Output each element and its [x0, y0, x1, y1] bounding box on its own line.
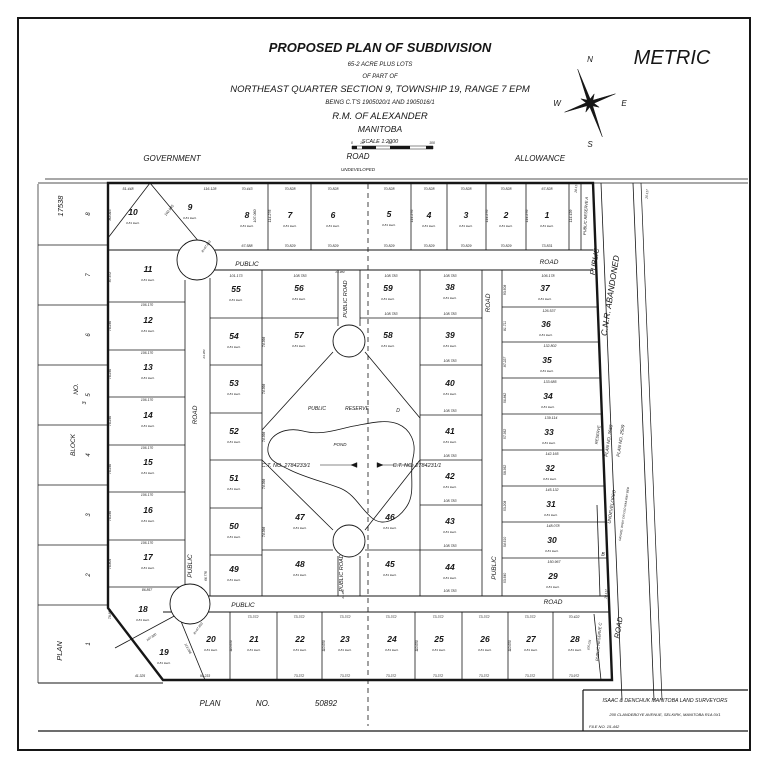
dimension-text: 106.170 [141, 541, 153, 545]
lot-area: 0.81 Hect. [385, 648, 399, 652]
road-label: ROAD [485, 293, 492, 312]
ct-arrowheads [351, 463, 383, 468]
lot-number: 23 [339, 634, 350, 644]
dimension-text: 110.050 [415, 640, 419, 652]
lot-area: 0.81 Hect. [538, 297, 552, 301]
lot-area: 0.81 Hect. [383, 526, 397, 530]
boundary-line [150, 183, 200, 243]
adjacent-lot-number: 1 [86, 642, 92, 645]
dimension-text: 113.098 [183, 643, 192, 655]
dimension: 20.117 [645, 189, 650, 200]
plan-province: MANITOBA [358, 124, 403, 134]
lot-number: 16 [143, 505, 153, 515]
lot-area: 0.81 Hect. [141, 376, 155, 380]
lot-number: 20 [205, 634, 216, 644]
lot-area: 0.81 Hect. [568, 648, 582, 652]
dimension-text: 110.050 [508, 640, 512, 652]
lot-number: 3 [464, 210, 469, 220]
dimension-text: 142.165 [546, 452, 559, 456]
dimension-text: 70.829 [424, 244, 435, 248]
dimension-text: 70.829 [461, 244, 472, 248]
road-allowance-label: GOVERNMENT [143, 154, 201, 163]
dimension-text: 67.588 [242, 244, 253, 248]
lot-area: 0.81 Hect. [293, 648, 307, 652]
dimension-text: 108.783 [444, 359, 457, 363]
lot-number: 37 [540, 283, 551, 293]
lot-number: 46 [384, 512, 395, 522]
compass-rose-icon [565, 69, 616, 137]
lot-number: 49 [228, 564, 239, 574]
lot-number: 21 [248, 634, 259, 644]
east-road-name: PUBLIC [588, 247, 601, 276]
dimension-text: 73.372 [340, 674, 350, 678]
lot-number: 51 [229, 473, 239, 483]
dimension-text: 76.804 [108, 559, 112, 569]
lot-area: 0.81 Hect. [229, 298, 243, 302]
lot-number: 13 [143, 362, 153, 372]
lot-area: 0.81 Hect. [247, 648, 261, 652]
lot-area: 0.81 Hect. [382, 223, 396, 227]
road-label: ROAD [540, 259, 559, 266]
lot-number: 32 [545, 463, 555, 473]
road-label: PUBLIC ROAD [343, 280, 349, 317]
plan-municipality: R.M. OF ALEXANDER [332, 111, 428, 122]
lot-area: 0.81 Hect. [136, 618, 150, 622]
lot-area: 0.81 Hect. [545, 549, 559, 553]
lot-area: 0.81 Hect. [541, 405, 555, 409]
lot-area: 0.81 Hect. [542, 441, 556, 445]
dimension-text: 126.537 [543, 309, 557, 313]
dimension-text: 94.233 [200, 674, 210, 678]
lot-area: 0.81 Hect. [443, 296, 457, 300]
lot-number: 53 [229, 378, 239, 388]
reserve-a-label: PUBLIC RESERVE A [582, 196, 589, 235]
dimension-text: 41.325 [135, 674, 145, 678]
dimension-text: 73.372 [340, 615, 351, 619]
dimension-text: 105.011 [586, 639, 592, 650]
lot-area: 0.81 Hect. [227, 578, 241, 582]
lot-number: 38 [445, 282, 455, 292]
dimension-text: 106.170 [141, 398, 153, 402]
lot-area: 0.81 Hect. [432, 648, 446, 652]
lot-number: 59 [383, 283, 393, 293]
road-label: PUBLIC ROAD [339, 554, 345, 591]
dimension-text: 114.276 [485, 210, 489, 223]
dimension: 20.117 [574, 183, 579, 194]
reserve-d-label: RESERVE [345, 406, 369, 412]
lot-area: 0.81 Hect. [141, 471, 155, 475]
adjacent-plan-number: 17538 [56, 195, 65, 217]
lot-area: 0.81 Hect. [293, 526, 307, 530]
lot-number: 11 [144, 264, 153, 274]
metric-label: METRIC [634, 47, 711, 69]
lot-number: 19 [159, 647, 169, 657]
dimension-text: 73.372 [479, 674, 489, 678]
dimension-text: 114.276 [268, 210, 272, 223]
dimension-text: 70.829 [501, 244, 512, 248]
plan-subtitle: 65-2 ACRE PLUS LOTS [348, 62, 413, 68]
lot-area: 0.81 Hect. [227, 345, 241, 349]
dimension-text: 110.050 [229, 640, 233, 652]
lot-number: 28 [569, 634, 580, 644]
gravel-walk-note: GRAVEL WALK ON OLD RAILWAY BED [618, 486, 631, 541]
road-label: PUBLIC [491, 556, 498, 580]
lot-number: 8 [245, 210, 250, 220]
lot-area: 0.81 Hect. [539, 333, 553, 337]
plan-scale: SCALE 1:2000 [362, 139, 399, 145]
lot-area: 0.81 Hect. [383, 573, 397, 577]
lot-area: 0.81 Hect. [141, 566, 155, 570]
dimension-text: 108.783 [444, 499, 457, 503]
dimension-text: 76.236 [108, 464, 112, 474]
lot-area: 0.81 Hect. [443, 576, 457, 580]
lot-number: 39 [445, 330, 455, 340]
lot-area: 0.81 Hect. [381, 344, 395, 348]
lot-area: 0.81 Hect. [540, 224, 554, 228]
lot-number: 55 [231, 284, 241, 294]
boundary-line [365, 352, 420, 418]
dimension-text: 106.178 [542, 274, 555, 278]
lot-area: 0.81 Hect. [443, 440, 457, 444]
dimension-text: 73.372 [386, 674, 396, 678]
lot-number: 22 [294, 634, 305, 644]
lot-number: 43 [444, 516, 455, 526]
ct-number-west: C.T. NO. 2784233/1 [262, 463, 311, 469]
lot-area: 0.81 Hect. [141, 424, 155, 428]
dimension-text: 74.398 [262, 337, 266, 347]
lot-area: 0.81 Hect. [524, 648, 538, 652]
dimension-text: 70.829 [328, 244, 339, 248]
dimension-text: 70.828 [461, 187, 472, 191]
adjacent-lot-number: 7 [86, 273, 92, 277]
lot-number: 36 [541, 319, 551, 329]
lot-area: 0.81 Hect. [292, 297, 306, 301]
surveyor-address: 200 CLANDEBOYE AVENUE, SELKIRK, MANITOBA… [608, 712, 720, 717]
compass-west-label: W [553, 99, 562, 108]
lot-area: 0.81 Hect. [227, 392, 241, 396]
lot-number: 30 [547, 535, 557, 545]
dimension-text: 73.372 [294, 674, 304, 678]
scale-tick: 10 [360, 141, 364, 145]
dimension-text: 66.776 [204, 571, 208, 581]
cul-de-sac-bulb [170, 584, 210, 624]
lot-area: 0.81 Hect. [183, 216, 197, 220]
dimension-text: 148.078 [547, 524, 560, 528]
dimension-text: 70.829 [384, 244, 395, 248]
dimension-text: 107.060 [253, 210, 257, 223]
lot-number: 31 [546, 499, 556, 509]
lot-number: 41 [444, 426, 455, 436]
lot-number: 25 [433, 634, 444, 644]
dimension-text: 73.372 [525, 615, 536, 619]
lot-area: 0.81 Hect. [544, 513, 558, 517]
adjacent-lot-number: 6 [86, 333, 92, 337]
dimension-text: 56.842 [503, 393, 507, 403]
lot-number: 4 [426, 210, 432, 220]
lot-number: 6 [331, 210, 336, 220]
road-label: ROAD [192, 405, 199, 424]
lot-area: 0.81 Hect. [459, 224, 473, 228]
lot-area: 0.81 Hect. [381, 297, 395, 301]
adjacent-lot-number: 3 [86, 513, 92, 517]
adjacent-lot-number: 8 [86, 212, 92, 216]
road-allowance-status: UNDEVELOPED [341, 167, 376, 172]
scale-bar-fill [352, 146, 433, 149]
ct-number-east: C.T. NO. 2784231/1 [393, 463, 442, 469]
dimension-text: 114.276 [410, 210, 414, 223]
lot-number: 40 [444, 378, 455, 388]
lot-number: 54 [229, 331, 239, 341]
plan-legal-description: NORTHEAST QUARTER SECTION 9, TOWNSHIP 19… [230, 84, 530, 95]
road-label: PUBLIC [187, 554, 194, 578]
dimension-text: 110.050 [322, 640, 326, 652]
dimension-text: 24.384 [341, 589, 345, 600]
dimension-text: 76.236 [108, 369, 112, 379]
lot-area: 0.81 Hect. [478, 648, 492, 652]
surveyor-name: ISAAC & DENCHUK MANITOBA LAND SURVEYORS [602, 698, 728, 704]
dimension-text: 108.783 [444, 312, 457, 316]
lot-area: 0.81 Hect. [540, 369, 554, 373]
lot-number: 26 [479, 634, 490, 644]
east-road-status: UNDEVELOPED [606, 489, 616, 524]
dimension-text: 139.114 [545, 416, 558, 420]
adjacent-plan-label: NO. [73, 383, 80, 395]
cnr-abandoned-label: C.N.R. ABANDONED [599, 255, 622, 337]
dimension-text: 106.170 [141, 351, 153, 355]
dimension-text: 70.828 [501, 187, 512, 191]
plan-title: PROPOSED PLAN OF SUBDIVISION [269, 40, 492, 55]
dimension-text: 108.783 [385, 274, 398, 278]
lot-number: 29 [547, 571, 558, 581]
lot-number: 42 [444, 471, 455, 481]
dimension-text: 67.828 [542, 187, 553, 191]
cul-de-sac-bulb [333, 525, 365, 557]
bottom-plan-number: 50892 [315, 699, 338, 708]
dimension-text: 70.443 [242, 187, 253, 191]
survey-plan-sheet: PROPOSED PLAN OF SUBDIVISION65-2 ACRE PL… [0, 0, 768, 768]
compass-east-label: E [621, 99, 627, 108]
boundary-line [633, 183, 654, 700]
lot-area: 0.81 Hect. [443, 392, 457, 396]
lot-area: 0.81 Hect. [227, 440, 241, 444]
dimension-text: 73.372 [433, 615, 444, 619]
lot-area: 0.81 Hect. [338, 648, 352, 652]
dimension-text: 24.384 [334, 270, 345, 274]
lot-area: 0.81 Hect. [240, 224, 254, 228]
lot-number: 33 [544, 427, 554, 437]
lot-area: 0.81 Hect. [293, 573, 307, 577]
lot-area: 0.81 Hect. [443, 530, 457, 534]
dimension-text: 107.800 [146, 632, 158, 642]
dimension-text: 70.828 [424, 187, 435, 191]
compass-south-label: S [587, 140, 593, 149]
dimension-text: 53.540 [503, 573, 507, 583]
lot-number: 24 [386, 634, 397, 644]
boundary-line [597, 505, 600, 596]
dimension-text: 93.508 [503, 285, 507, 295]
road-label: PUBLIC [231, 602, 255, 609]
dimension-text: 73.972 [569, 674, 579, 678]
dimension-text: 80.043 [108, 210, 112, 221]
dimension-text: 73.372 [433, 674, 443, 678]
road-label: ROAD [544, 599, 563, 606]
lot-number: 10 [128, 207, 138, 217]
dimension-text: 108.783 [444, 454, 457, 458]
dimension-text: 74.398 [262, 432, 266, 442]
cul-de-sac-bulb [177, 240, 217, 280]
dimension-text: 81.711 [503, 321, 507, 331]
lot-area: 0.81 Hect. [546, 585, 560, 589]
plan-2509-label: PLAN NO. 2509 [616, 424, 626, 457]
lot-area: 0.81 Hect. [227, 535, 241, 539]
lot-area: 0.81 Hect. [443, 344, 457, 348]
scale-tick: 50 [388, 141, 392, 145]
adjacent-plan-label: PLAN [55, 641, 64, 661]
dimension-text: 145.132 [546, 488, 559, 492]
lot-area: 0.81 Hect. [499, 224, 513, 228]
compass-north-label: N [587, 55, 593, 64]
road-allowance-label: ALLOWANCE [514, 154, 566, 163]
dimension-text: 116.128 [204, 187, 217, 191]
lot-number: 2 [503, 210, 509, 220]
lot-area: 0.81 Hect. [141, 278, 155, 282]
dimension-text: 76.236 [108, 416, 112, 426]
lot-number: 34 [543, 391, 553, 401]
dimension-text: 70.829 [285, 244, 296, 248]
boundary-line [262, 352, 333, 430]
pond-label: POND [333, 442, 347, 447]
lot-area: 0.81 Hect. [141, 329, 155, 333]
dimension-text: 78.854 [108, 609, 112, 619]
lot-number: 17 [143, 552, 154, 562]
reserve-d-label: D [396, 408, 400, 414]
dimension-text: 87.227 [503, 357, 507, 367]
road-allowance-label: ROAD [346, 152, 369, 161]
dimension-text: 51.448 [123, 187, 134, 191]
dimension-text: 87.372 [108, 272, 112, 282]
dimension-text: 108.783 [444, 274, 457, 278]
lot-area: 0.81 Hect. [204, 648, 218, 652]
dimension-text: 57.352 [503, 429, 507, 439]
dimension-text: 74.398 [262, 527, 266, 537]
subdivision-plan-drawing: PROPOSED PLAN OF SUBDIVISION65-2 ACRE PL… [0, 0, 768, 768]
lot-number: 48 [294, 559, 305, 569]
lot-number: 58 [383, 330, 393, 340]
pond-outline [268, 422, 414, 522]
east-road-name: ROAD [612, 616, 624, 639]
dimension-text: 106.170 [141, 303, 153, 307]
dimension-text: 108.783 [385, 312, 398, 316]
dimension-text: 74.398 [262, 479, 266, 489]
dimension-text: 108.783 [444, 409, 457, 413]
lot-number: 44 [444, 562, 455, 572]
dimension-text: 58.352 [503, 465, 507, 475]
lot-area: 0.81 Hect. [292, 344, 306, 348]
dimension-text: 106.170 [141, 446, 153, 450]
lot-number: 47 [294, 512, 306, 522]
lot-number: 35 [542, 355, 552, 365]
dimension-text: 132.802 [544, 344, 557, 348]
adjacent-plan-label: BLOCK [70, 433, 77, 456]
dimension-text: 150.967 [548, 560, 562, 564]
adjacent-block-number: 3 [82, 401, 88, 405]
dimension-text: 133.685 [544, 380, 557, 384]
lot-number: 5 [387, 209, 392, 219]
reserve-b-label: B [601, 552, 605, 558]
dimension-text: 24.384 [202, 349, 206, 360]
lot-number: 12 [143, 315, 153, 325]
dimension-text: 73.372 [248, 615, 259, 619]
surveyor-file-number: FILE NO. 15-442 [589, 724, 620, 729]
dimension-text: 106.170 [141, 493, 153, 497]
lot-area: 0.81 Hect. [126, 221, 140, 225]
lot-number: 45 [384, 559, 395, 569]
boundary-line [641, 183, 662, 700]
scale-tick: 0 [351, 141, 353, 145]
dimension-text: 73.372 [386, 615, 397, 619]
lot-area: 0.81 Hect. [543, 477, 557, 481]
dimension-text: 73.372 [294, 615, 305, 619]
adjacent-lot-number: 5 [86, 393, 92, 397]
lot-number: 15 [143, 457, 153, 467]
bottom-plan-label: PLAN [200, 699, 221, 708]
adjacent-lot-number: 4 [86, 453, 92, 457]
lot-number: 14 [143, 410, 153, 420]
dimension-text: 108.783 [444, 544, 457, 548]
dimension-text: 70.828 [384, 187, 395, 191]
dimension-text: 74.398 [262, 384, 266, 394]
lot-area: 0.81 Hect. [443, 485, 457, 489]
dimension-text: 73.831 [542, 244, 553, 248]
dimension-text: 73.372 [525, 674, 535, 678]
dimension-text: 76.236 [108, 511, 112, 521]
dimension-text: 76.236 [108, 321, 112, 331]
lot-number: 18 [138, 604, 148, 614]
dimension-text: 101.173 [230, 274, 243, 278]
lot-area: 0.81 Hect. [326, 224, 340, 228]
dimension-text: 70.422 [569, 615, 580, 619]
dimension-text: 73.372 [479, 615, 490, 619]
lot-area: 0.81 Hect. [283, 224, 297, 228]
lot-number: 57 [294, 330, 305, 340]
dimension-text: 54.510 [503, 537, 507, 547]
plan-subtitle-2: OF PART OF [362, 74, 398, 80]
reserve-d-label: PUBLIC [308, 406, 326, 412]
plan-ct-references: BEING C.T'S 1905020/1 AND 1905016/1 [325, 100, 434, 106]
lot-number: 1 [545, 210, 550, 220]
dimension-text: 114.439 [569, 210, 573, 223]
lot-area: 0.81 Hect. [227, 487, 241, 491]
lot-number: 56 [294, 283, 304, 293]
dimension-text: 108.783 [444, 589, 457, 593]
dimension-text: 86.857 [142, 588, 152, 592]
lot-number: 50 [229, 521, 239, 531]
dimension-text: 114.276 [525, 210, 529, 223]
dimension-text: 108.783 [294, 274, 307, 278]
scale-tick: 100 [429, 141, 435, 145]
road-label: PUBLIC [235, 261, 259, 268]
dimension-text: 70.828 [328, 187, 339, 191]
reserve-label: RESERVE [594, 425, 602, 445]
lot-area: 0.81 Hect. [422, 224, 436, 228]
bottom-plan-label: NO. [256, 699, 270, 708]
lot-area: 0.81 Hect. [141, 519, 155, 523]
lot-number: 7 [288, 210, 294, 220]
lot-number: 9 [188, 202, 193, 212]
dimension-text: 70.828 [285, 187, 296, 191]
lot-area: 0.81 Hect. [157, 661, 171, 665]
adjacent-lot-number: 2 [86, 573, 92, 578]
